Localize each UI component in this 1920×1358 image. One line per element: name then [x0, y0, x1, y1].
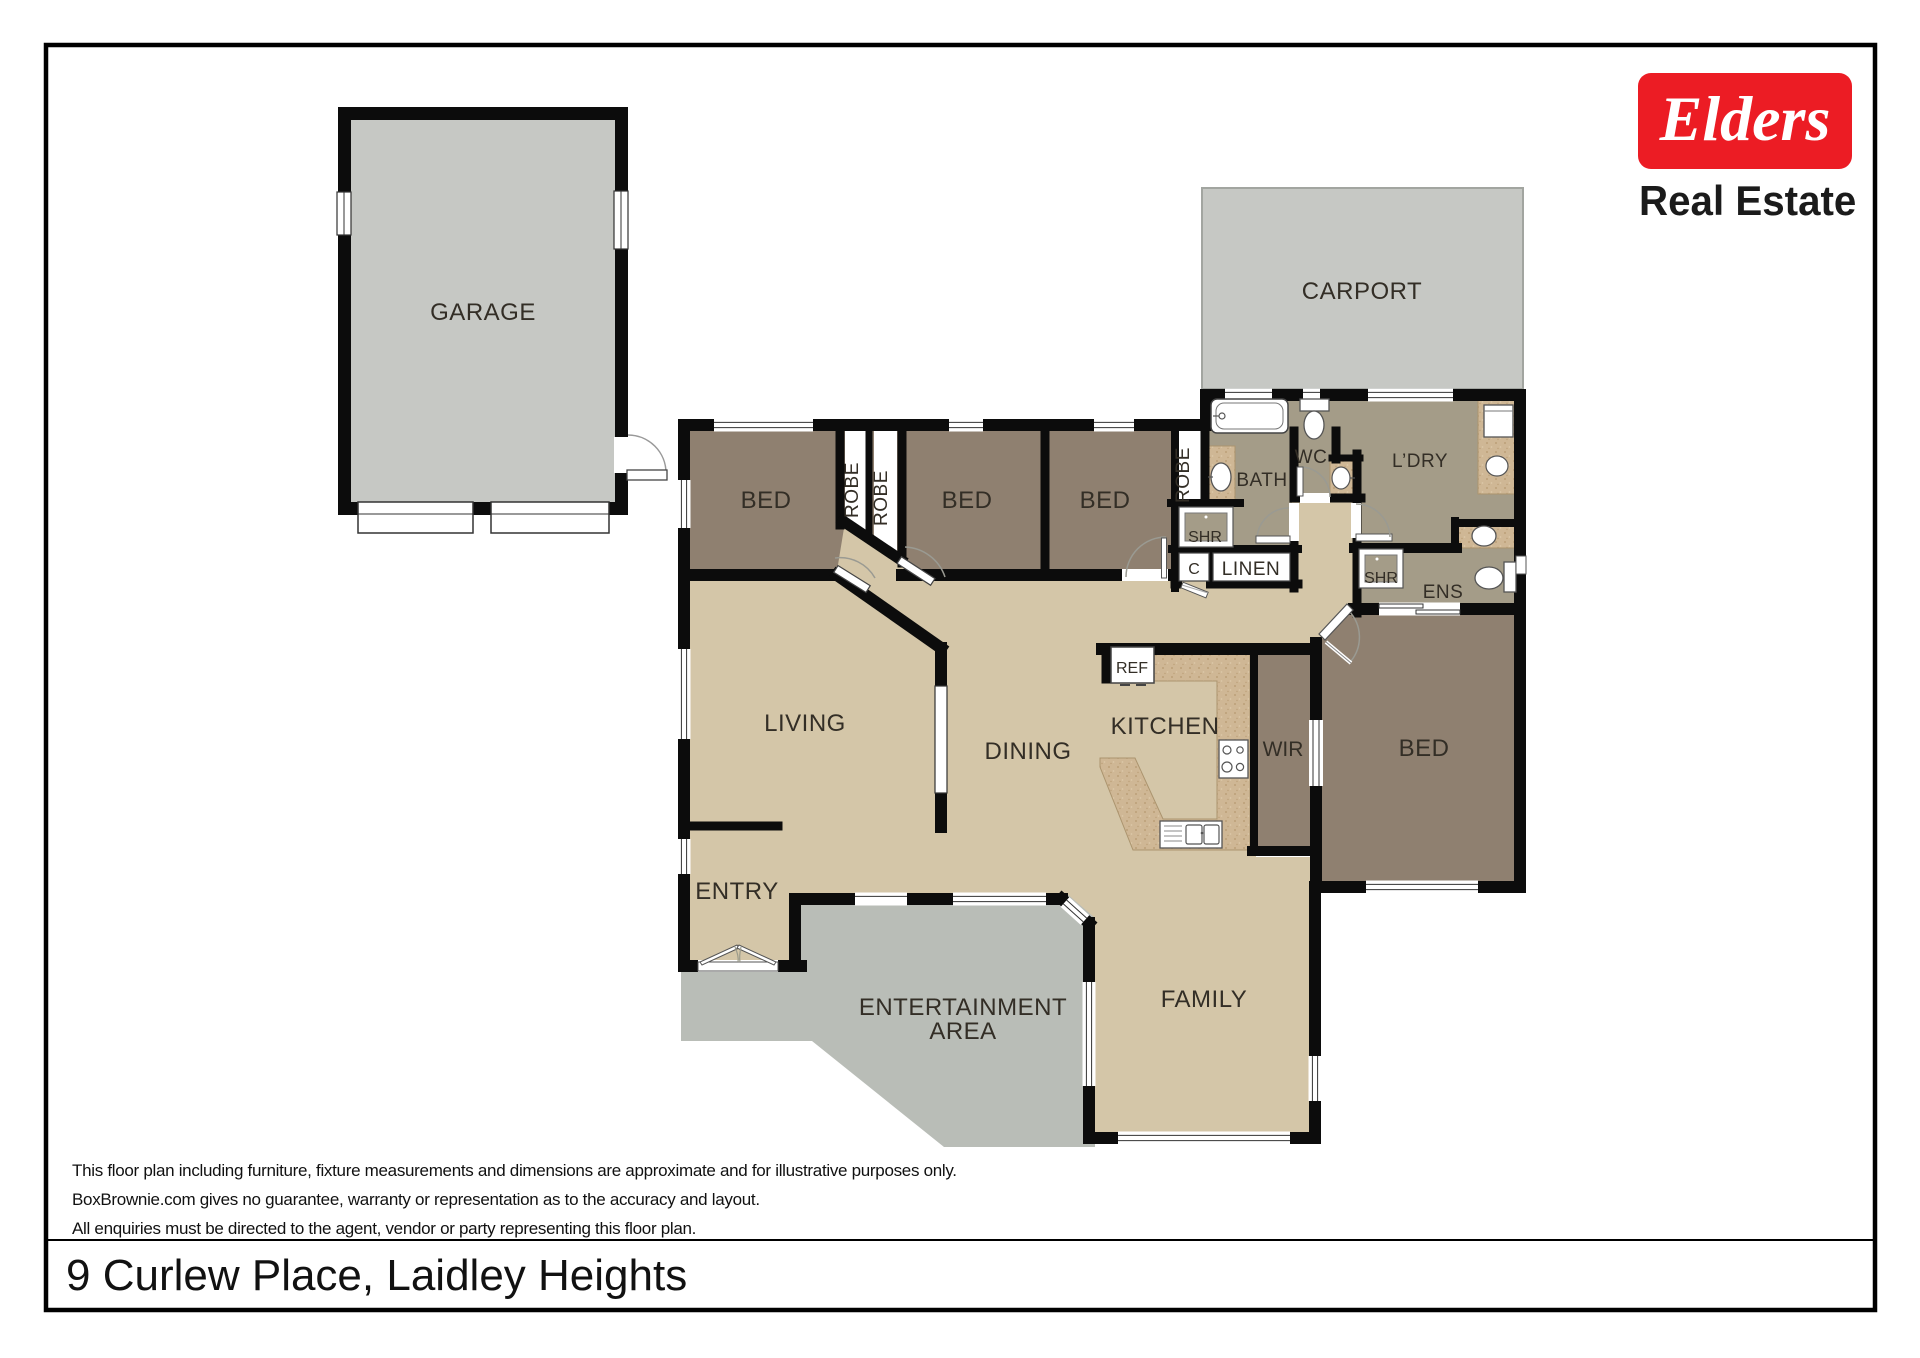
svg-text:DINING: DINING — [985, 738, 1072, 765]
svg-text:BED: BED — [741, 487, 792, 514]
svg-text:BoxBrownie.com gives no guaran: BoxBrownie.com gives no guarantee, warra… — [72, 1190, 760, 1209]
svg-text:BED: BED — [942, 487, 993, 514]
svg-text:LIVING: LIVING — [764, 710, 846, 737]
svg-text:All enquiries must be directed: All enquiries must be directed to the ag… — [72, 1219, 696, 1238]
svg-text:L’DRY: L’DRY — [1392, 451, 1448, 472]
svg-text:BATH: BATH — [1236, 470, 1287, 491]
svg-text:BED: BED — [1080, 487, 1131, 514]
svg-text:WIR: WIR — [1263, 738, 1304, 761]
svg-text:ENTRY: ENTRY — [695, 878, 778, 905]
svg-text:ENS: ENS — [1423, 582, 1464, 603]
svg-text:FAMILY: FAMILY — [1161, 986, 1248, 1013]
svg-text:AREA: AREA — [929, 1018, 996, 1045]
svg-text:ROBE: ROBE — [1173, 447, 1194, 503]
svg-text:ROBE: ROBE — [871, 470, 892, 526]
svg-text:GARAGE: GARAGE — [430, 299, 536, 326]
svg-text:BED: BED — [1399, 735, 1450, 762]
svg-text:9 Curlew Place, Laidley Height: 9 Curlew Place, Laidley Heights — [66, 1251, 687, 1300]
svg-text:LINEN: LINEN — [1222, 559, 1280, 580]
svg-text:ROBE: ROBE — [842, 462, 863, 518]
svg-text:This floor plan including furn: This floor plan including furniture, fix… — [72, 1161, 957, 1180]
svg-text:Real Estate: Real Estate — [1639, 177, 1856, 224]
svg-text:SHR: SHR — [1188, 529, 1222, 546]
svg-text:CARPORT: CARPORT — [1302, 278, 1422, 305]
svg-text:Elders: Elders — [1659, 83, 1831, 154]
svg-text:C: C — [1188, 561, 1200, 578]
svg-text:REF: REF — [1116, 660, 1148, 677]
svg-text:ENTERTAINMENT: ENTERTAINMENT — [859, 994, 1067, 1021]
svg-text:KITCHEN: KITCHEN — [1111, 713, 1220, 740]
svg-text:SHR: SHR — [1364, 570, 1398, 587]
svg-text:WC: WC — [1295, 447, 1328, 468]
